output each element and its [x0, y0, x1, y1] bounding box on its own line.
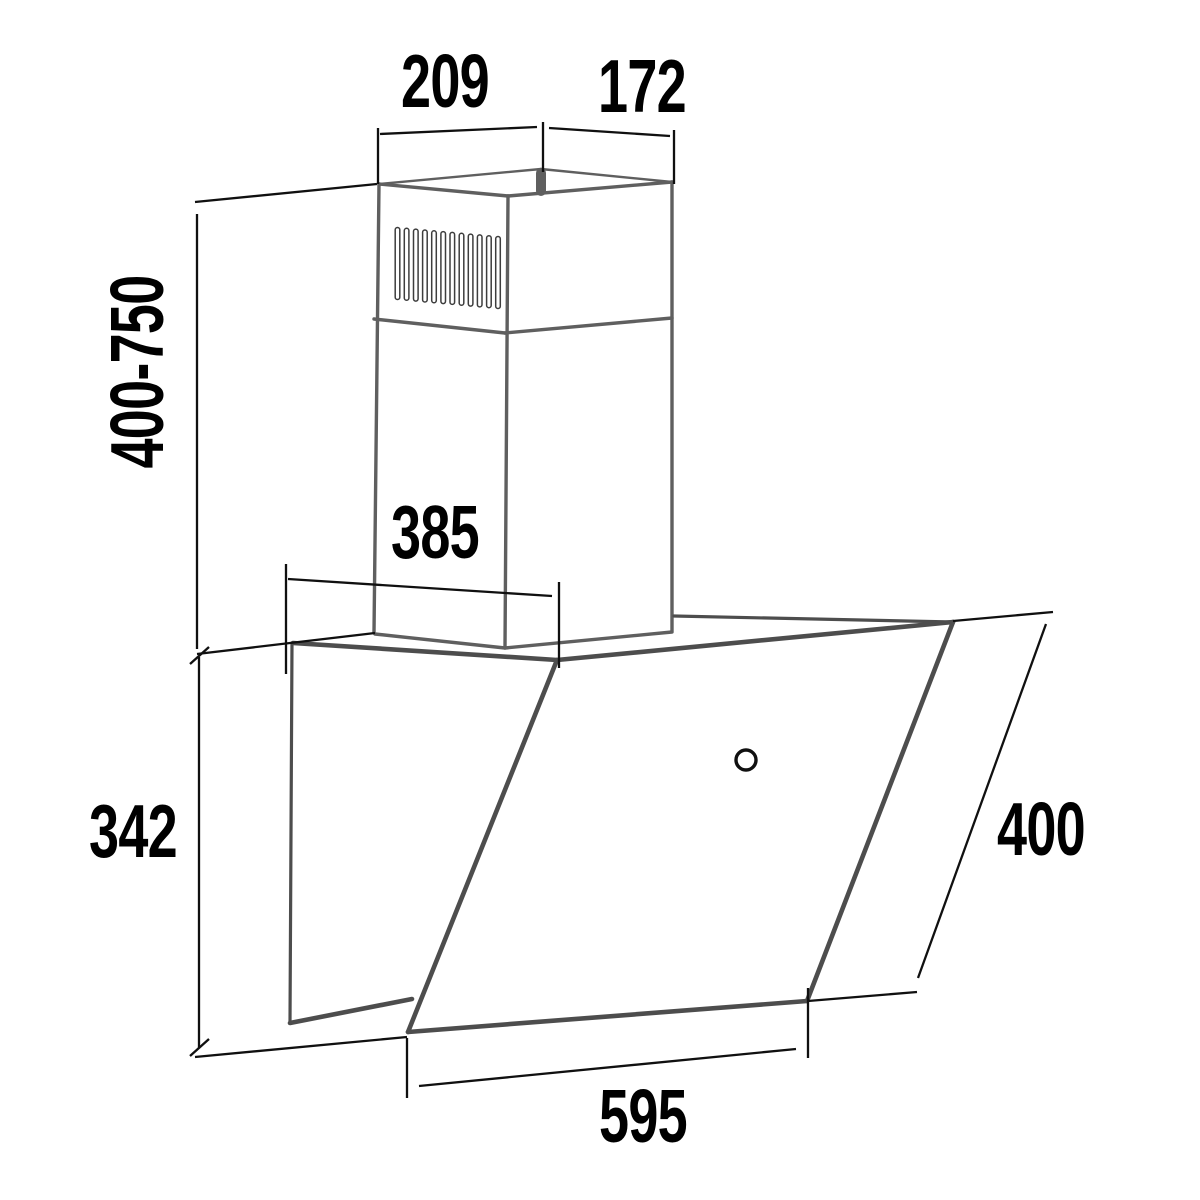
vent-slot — [496, 237, 501, 309]
hood-body — [290, 616, 953, 1032]
dimension-chimney-top-width: 209 — [378, 39, 543, 184]
dim-342-ext-bottom — [195, 1037, 407, 1057]
touch-control-dot — [736, 750, 756, 770]
glass-top-edge — [557, 622, 953, 660]
dimension-hood-width: 595 — [407, 988, 808, 1158]
dimension-chimney-top-depth: 172 — [549, 44, 686, 184]
hood-technical-drawing: 209 172 400-750 385 342 400 — [0, 0, 1200, 1200]
chimney-vent-grille — [395, 228, 500, 309]
dim-209-line — [380, 127, 537, 134]
back-panel-left-edge — [290, 643, 292, 1023]
hood-technical-drawing-page: 209 172 400-750 385 342 400 — [0, 0, 1200, 1200]
vent-slot — [441, 232, 446, 304]
vent-slot — [432, 231, 437, 303]
back-panel-bottom-edge — [290, 999, 412, 1023]
dim-209-label: 209 — [401, 39, 489, 123]
chimney-bottom-edge-left — [375, 634, 505, 648]
vent-slot — [414, 229, 419, 301]
dim-172-line — [549, 128, 670, 136]
chimney-top-back-rim-left — [379, 169, 541, 184]
chimney-top-right-rim — [508, 182, 672, 196]
chimney-top-left-rim — [379, 184, 508, 196]
chimney-top-back-rim-right — [541, 169, 672, 182]
dim-172-label: 172 — [598, 44, 686, 128]
chimney-section-division-right — [505, 318, 672, 333]
vent-slot — [468, 234, 473, 306]
dimension-back-panel-height: 342 — [89, 633, 407, 1057]
glass-bottom-edge — [408, 1001, 807, 1032]
hood-back-top-edge — [674, 616, 953, 622]
vent-slot — [487, 236, 492, 308]
chimney-bottom-edge-right — [505, 632, 672, 648]
vent-slot — [477, 235, 482, 307]
dim-400-750-label: 400-750 — [95, 275, 179, 468]
dim-400-ext-bottom — [808, 992, 917, 1001]
vent-slot — [395, 228, 400, 300]
vent-slot — [404, 228, 409, 300]
dim-400-ext-top — [953, 612, 1053, 621]
chimney-section-division-left — [374, 319, 505, 333]
dimension-glass-panel-height: 400 — [808, 612, 1085, 1001]
vent-slot — [423, 230, 428, 302]
dim-400-label: 400 — [997, 787, 1085, 871]
dimension-chimney-height: 400-750 — [95, 184, 377, 649]
dim-342-label: 342 — [89, 789, 177, 873]
dim-595-label: 595 — [599, 1074, 687, 1158]
glass-left-edge — [408, 660, 557, 1032]
dim-385-line — [288, 579, 552, 596]
vent-slot — [450, 232, 455, 304]
chimney-left-edge — [374, 184, 379, 633]
chimney-front-edge — [505, 196, 508, 647]
dim-400-750-ext-top — [195, 184, 377, 202]
chimney-duct — [374, 169, 672, 648]
vent-slot — [459, 233, 464, 305]
dim-385-label: 385 — [391, 490, 479, 574]
